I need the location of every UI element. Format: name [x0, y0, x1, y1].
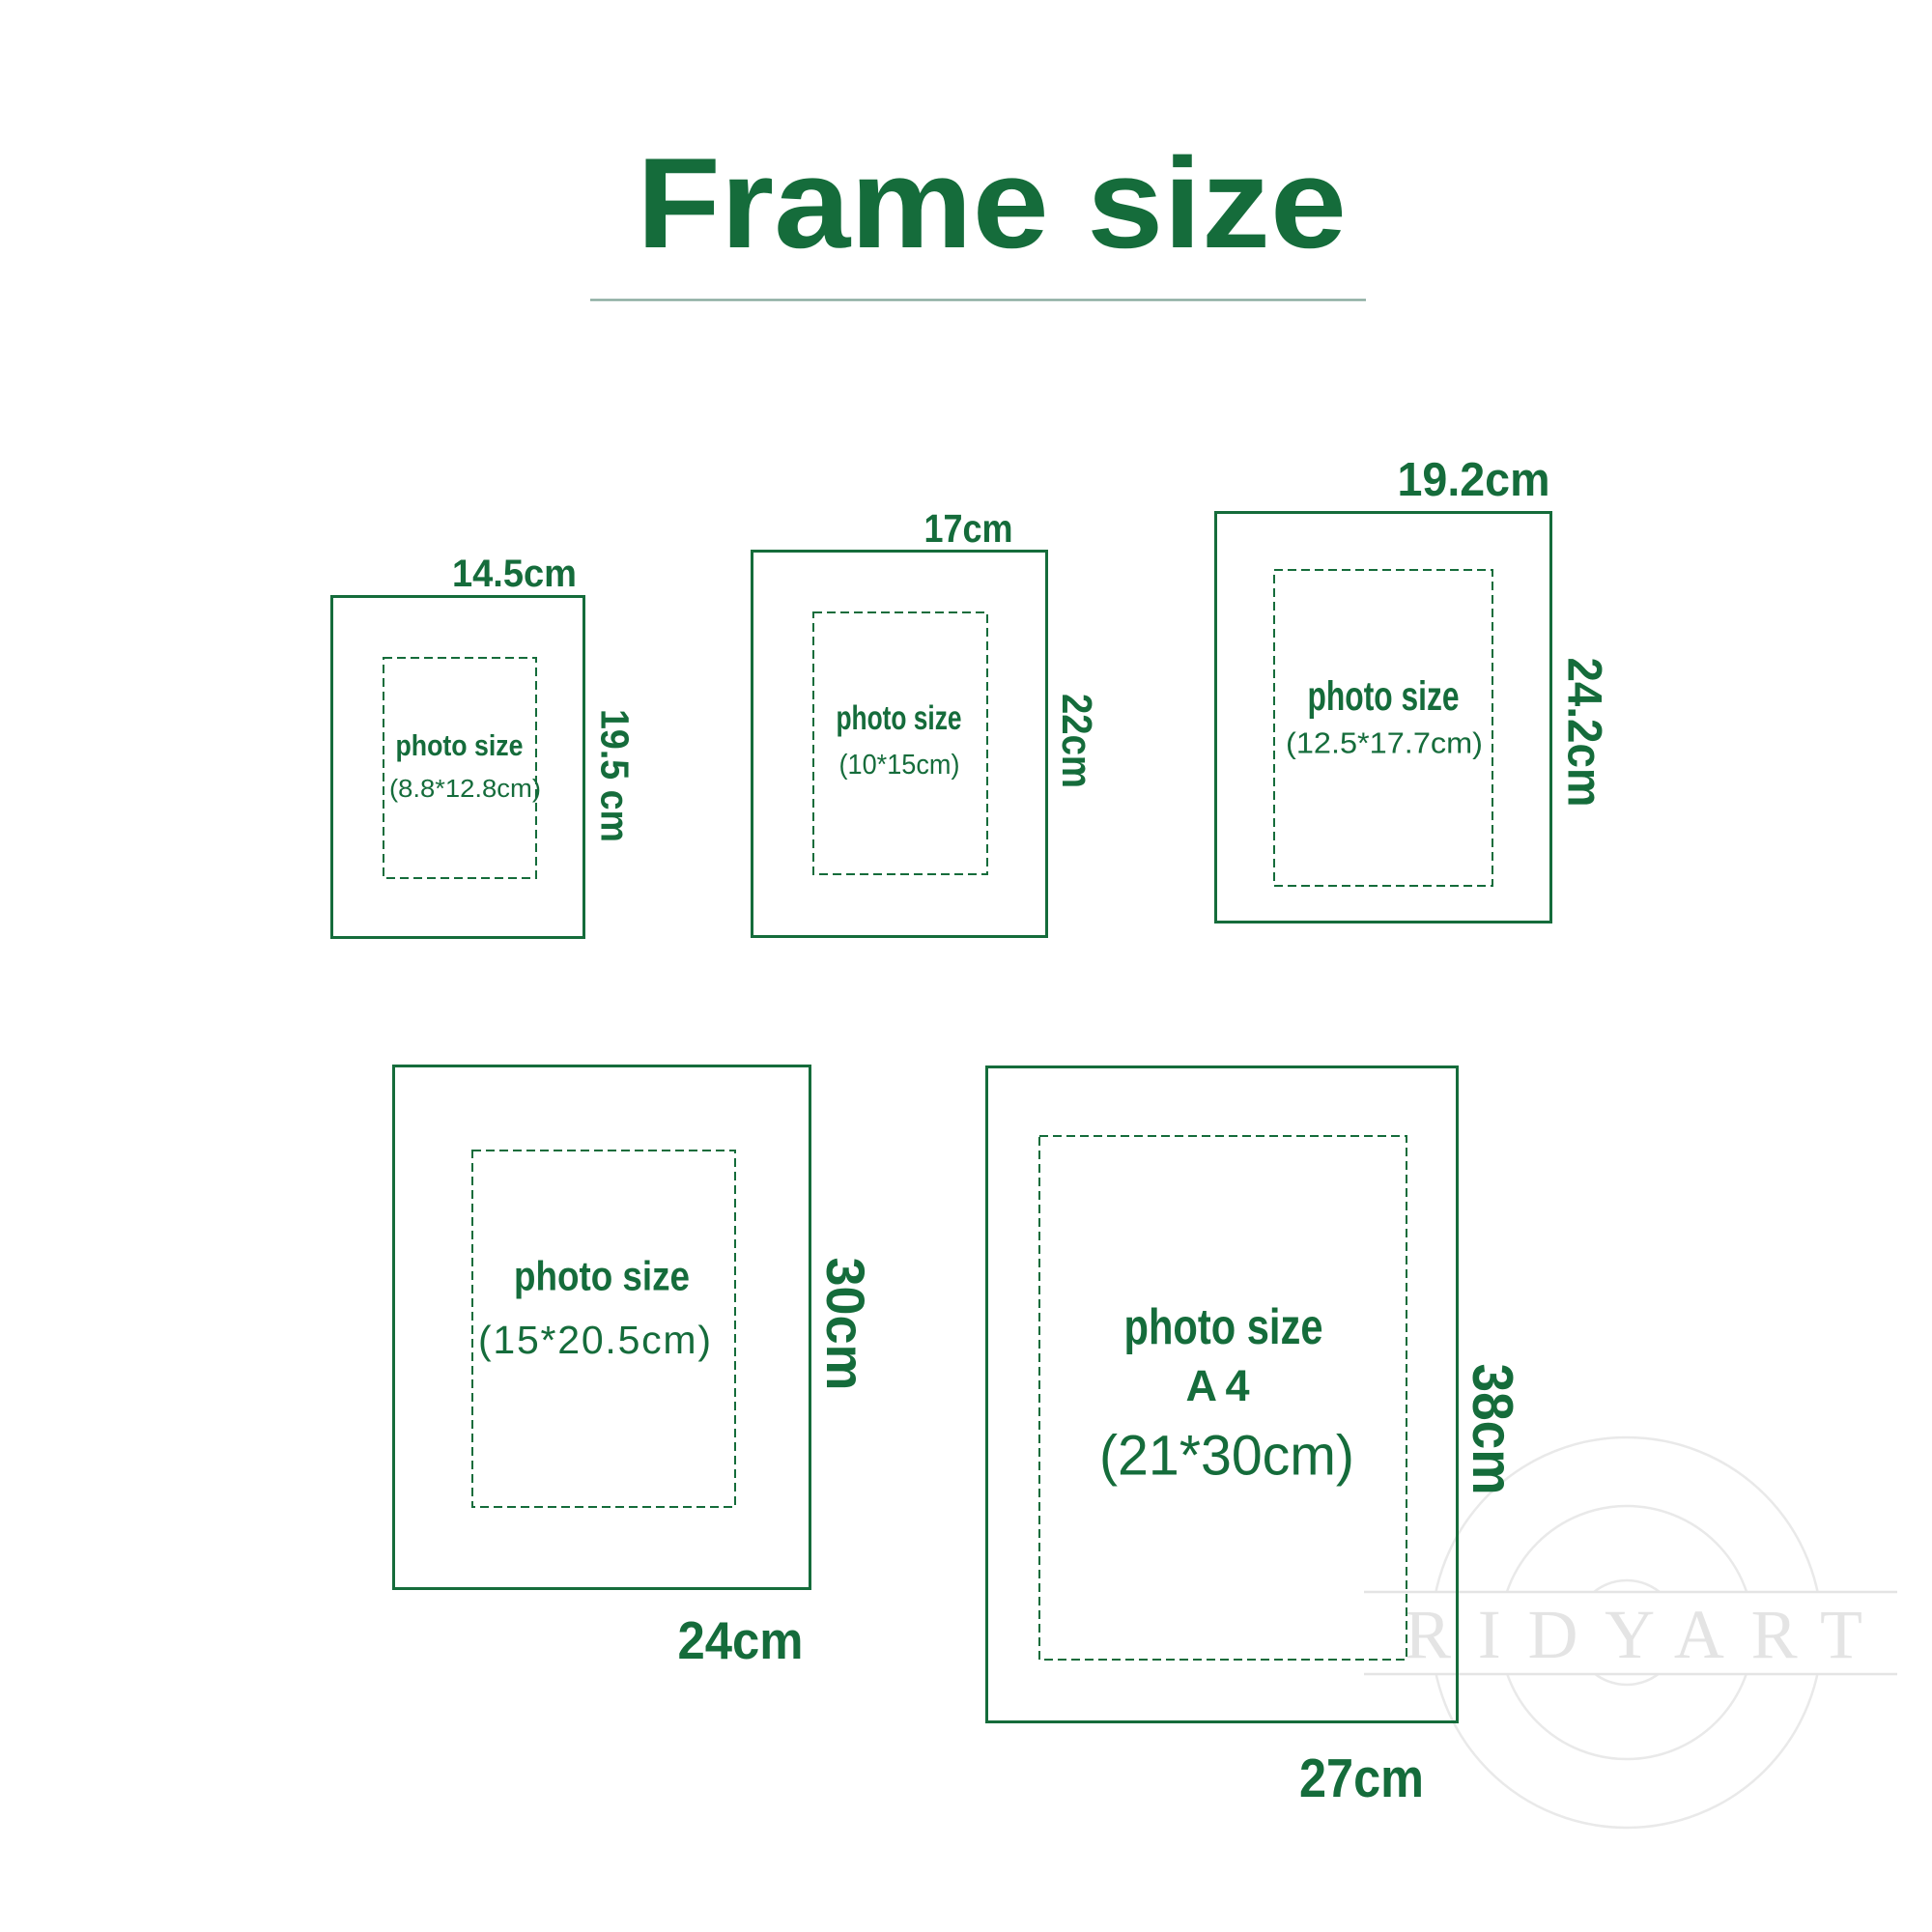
svg-text:photo size: photo size	[396, 728, 524, 762]
svg-text:(21*30cm): (21*30cm)	[1099, 1425, 1354, 1488]
svg-text:photo size: photo size	[514, 1254, 690, 1300]
svg-text:24cm: 24cm	[678, 1610, 804, 1670]
svg-text:(10*15cm): (10*15cm)	[839, 750, 960, 781]
svg-text:(15*20.5cm): (15*20.5cm)	[478, 1318, 711, 1362]
svg-text:photo size: photo size	[837, 699, 962, 737]
svg-text:22cm: 22cm	[1053, 694, 1100, 788]
svg-text:14.5cm: 14.5cm	[452, 553, 577, 595]
svg-text:17cm: 17cm	[924, 506, 1013, 551]
svg-text:photo size: photo size	[1308, 673, 1460, 720]
svg-text:19.5 cm: 19.5 cm	[593, 709, 638, 842]
svg-text:38cm: 38cm	[1461, 1364, 1524, 1495]
svg-text:photo size: photo size	[1124, 1299, 1323, 1355]
svg-text:(12.5*17.7cm): (12.5*17.7cm)	[1286, 726, 1483, 760]
svg-text:24.2cm: 24.2cm	[1558, 658, 1612, 808]
svg-text:Frame size: Frame size	[637, 132, 1347, 275]
svg-text:30cm: 30cm	[815, 1258, 876, 1391]
svg-text:19.2cm: 19.2cm	[1398, 454, 1550, 506]
svg-text:27cm: 27cm	[1299, 1747, 1424, 1809]
svg-text:(8.8*12.8cm): (8.8*12.8cm)	[389, 776, 541, 803]
